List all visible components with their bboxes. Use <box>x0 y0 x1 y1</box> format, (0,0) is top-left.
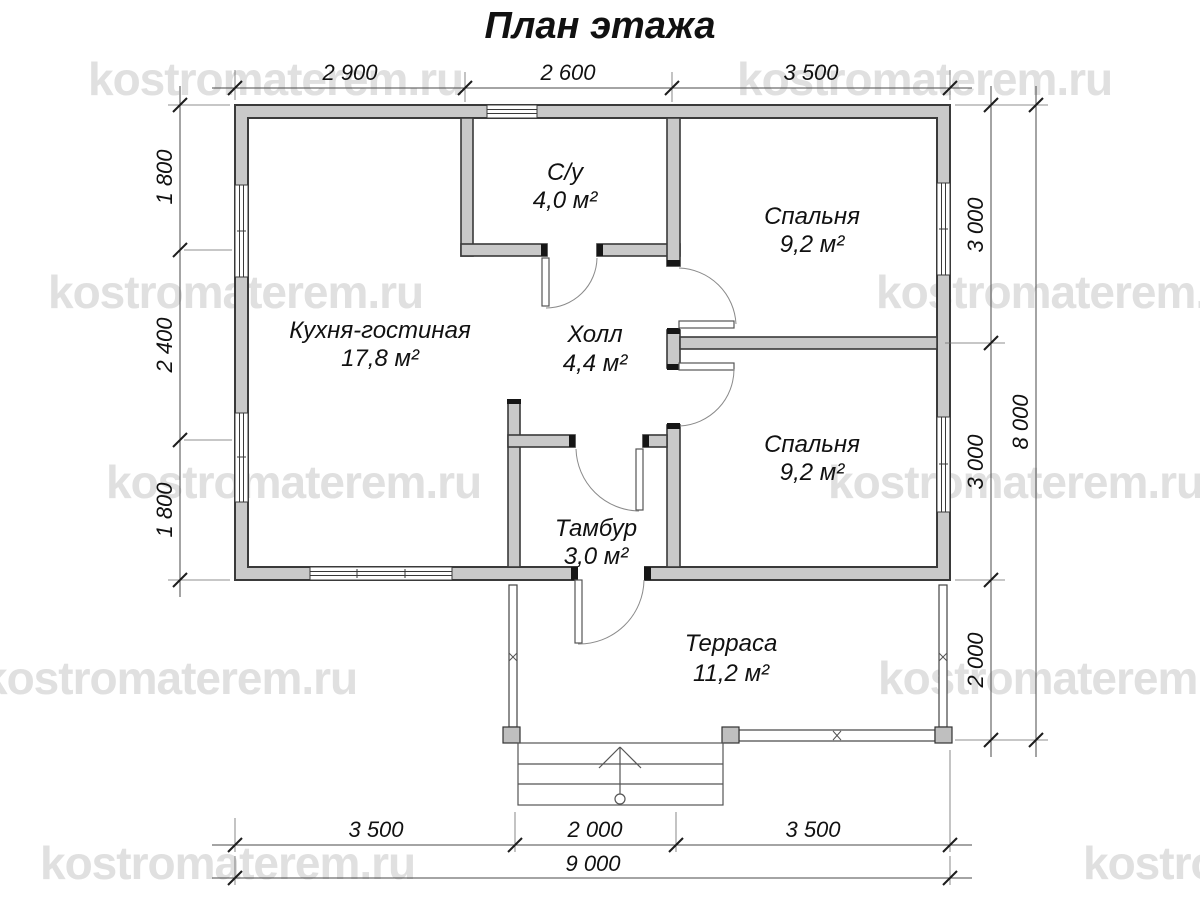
door-bedroom-lower <box>679 363 734 426</box>
dim-label: 3 500 <box>783 60 839 85</box>
svg-text:Холл: Холл <box>566 321 623 348</box>
dim-label: 1 800 <box>152 149 177 205</box>
wall-hall-bedroom-stub <box>667 330 680 368</box>
svg-text:11,2 м²: 11,2 м² <box>693 660 770 687</box>
door-bedroom-upper <box>679 268 736 328</box>
floor-plan-page: kostromaterem.ru kostromaterem.ru kostro… <box>0 0 1200 900</box>
wall-kitchen-tambour <box>508 400 520 567</box>
page-title: План этажа <box>484 5 715 47</box>
wall-hall-bedroom-lower <box>667 425 680 567</box>
railing-post <box>935 727 952 743</box>
dim-label: 2 400 <box>152 317 177 374</box>
watermark-text: kostromaterem.ru <box>878 652 1200 704</box>
wall-cap <box>507 399 521 404</box>
dim-label: 2 000 <box>963 632 988 689</box>
wall-bathroom-left <box>461 118 473 256</box>
svg-text:9,2 м²: 9,2 м² <box>780 231 845 258</box>
window-left-lower <box>235 413 248 502</box>
dim-label: 9 000 <box>565 851 621 876</box>
room-label-bedroom-upper: Спальня 9,2 м² <box>764 203 860 258</box>
watermark-text: kostromaterem.ru <box>88 53 463 105</box>
svg-text:Спальня: Спальня <box>764 431 860 458</box>
stairs-up-arrow-icon <box>599 747 641 804</box>
railing-post <box>503 727 520 743</box>
dim-label: 3 000 <box>963 434 988 490</box>
wall-tambour-top-left <box>508 435 575 447</box>
door-bathroom <box>542 258 597 308</box>
dim-label: 3 500 <box>785 817 841 842</box>
dim-label: 2 000 <box>566 817 623 842</box>
door-entrance <box>575 580 644 644</box>
room-label-tambour: Тамбур 3,0 м² <box>555 515 637 570</box>
window-top <box>487 105 537 118</box>
doors <box>542 258 736 644</box>
watermark-text: kostromaterem.ru <box>828 456 1200 508</box>
watermark-text: kostromaterem.ru <box>1083 837 1200 889</box>
room-label-bathroom: С/у 4,0 м² <box>533 159 598 214</box>
svg-text:Кухня-гостиная: Кухня-гостиная <box>289 317 471 344</box>
railing-post <box>722 727 739 743</box>
window-left-upper <box>235 185 248 277</box>
svg-text:4,0 м²: 4,0 м² <box>533 187 598 214</box>
watermark-text: kostromaterem.ru <box>876 266 1200 318</box>
room-label-terrace: Терраса 11,2 м² <box>685 630 778 687</box>
svg-text:9,2 м²: 9,2 м² <box>780 459 845 486</box>
door-hall-tambour <box>576 449 643 511</box>
dim-label: 8 000 <box>1008 394 1033 450</box>
svg-text:Терраса: Терраса <box>685 630 778 657</box>
watermark-text: kostromaterem.ru <box>0 652 357 704</box>
wall-hall-bedroom-upper <box>667 118 680 266</box>
window-bottom-kitchen <box>310 567 452 580</box>
floor-plan-drawing: kostromaterem.ru kostromaterem.ru kostro… <box>0 0 1200 900</box>
svg-text:4,4 м²: 4,4 м² <box>563 350 628 377</box>
svg-text:3,0 м²: 3,0 м² <box>564 543 629 570</box>
dimension-left: 1 800 2 400 1 800 <box>152 86 232 597</box>
svg-text:Тамбур: Тамбур <box>555 515 637 542</box>
dim-label: 1 800 <box>152 482 177 538</box>
room-label-hall: Холл 4,4 м² <box>563 321 628 377</box>
window-right-upper <box>937 183 950 275</box>
dim-label: 3 500 <box>348 817 404 842</box>
wall-bathroom-bottom-left <box>461 244 547 256</box>
wall-between-bedrooms <box>680 337 937 349</box>
svg-text:Спальня: Спальня <box>764 203 860 230</box>
dim-label: 3 000 <box>963 197 988 253</box>
railing-right <box>939 585 947 727</box>
railing-left <box>509 585 517 727</box>
dim-label: 2 900 <box>321 60 378 85</box>
svg-text:17,8 м²: 17,8 м² <box>341 345 420 372</box>
dim-label: 2 600 <box>539 60 596 85</box>
svg-text:С/у: С/у <box>547 159 585 186</box>
room-label-kitchen-living: Кухня-гостиная 17,8 м² <box>289 317 471 372</box>
window-right-lower <box>937 417 950 512</box>
